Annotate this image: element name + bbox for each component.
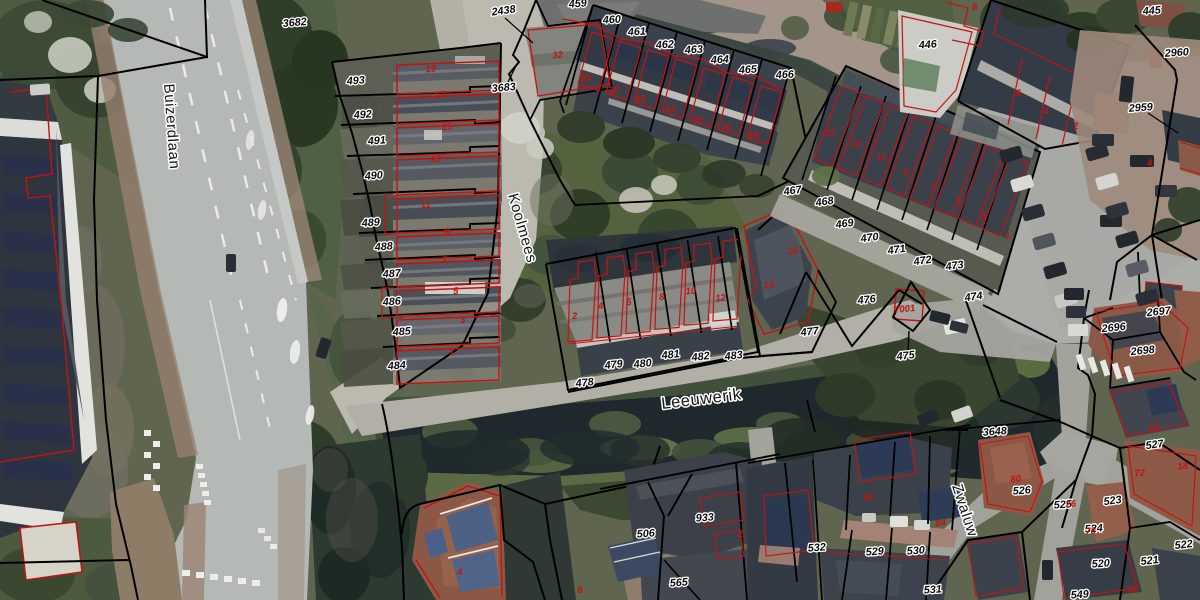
svg-text:491: 491 [366,134,386,147]
svg-text:549: 549 [1070,588,1089,600]
svg-text:22: 22 [691,114,704,126]
svg-text:19: 19 [425,63,437,75]
svg-text:32: 32 [552,49,564,61]
svg-text:11: 11 [876,152,887,164]
svg-text:465: 465 [738,63,759,76]
svg-text:10: 10 [685,285,697,297]
svg-text:446: 446 [917,38,938,51]
svg-text:3683: 3683 [491,81,516,95]
svg-text:521: 521 [1140,554,1159,568]
svg-text:493: 493 [345,74,365,87]
svg-text:529: 529 [865,545,884,558]
svg-text:15: 15 [441,121,453,133]
svg-text:484: 484 [386,359,406,372]
svg-text:80: 80 [1010,473,1022,485]
svg-text:12: 12 [1148,421,1160,433]
svg-text:28: 28 [607,84,620,96]
svg-text:490: 490 [363,169,383,182]
svg-text:14: 14 [763,279,775,291]
svg-text:18: 18 [1177,460,1189,472]
svg-text:530: 530 [906,544,925,557]
svg-text:445: 445 [1141,4,1162,17]
svg-text:463: 463 [684,44,704,57]
svg-text:24: 24 [664,103,677,115]
svg-text:480: 480 [632,357,652,371]
svg-text:3648: 3648 [982,425,1007,439]
svg-text:1: 1 [449,347,455,358]
svg-text:459: 459 [567,0,587,11]
svg-text:2960: 2960 [1163,46,1189,60]
svg-text:464: 464 [710,54,730,67]
svg-text:2959: 2959 [1127,101,1153,115]
svg-text:532: 532 [807,541,826,554]
svg-text:483: 483 [723,349,743,363]
svg-text:489: 489 [360,216,380,229]
svg-text:7001: 7001 [894,303,916,316]
svg-text:475: 475 [895,349,916,363]
svg-text:16: 16 [787,245,799,257]
svg-text:486: 486 [381,295,402,308]
svg-text:522: 522 [1174,538,1193,552]
svg-text:78: 78 [1085,525,1097,537]
svg-text:492: 492 [352,108,372,121]
svg-text:481: 481 [660,348,680,362]
svg-text:933: 933 [695,511,714,524]
svg-text:1: 1 [1005,231,1011,242]
svg-text:13: 13 [850,138,862,150]
svg-text:520: 520 [1091,557,1110,570]
svg-text:11: 11 [420,200,431,212]
svg-text:17: 17 [434,89,446,101]
svg-text:531: 531 [923,583,942,596]
svg-text:479: 479 [603,358,623,372]
svg-text:13: 13 [430,153,442,165]
svg-text:488: 488 [373,240,393,253]
svg-text:72: 72 [1134,467,1146,479]
svg-text:506: 506 [636,527,656,540]
svg-text:70: 70 [1126,584,1138,596]
svg-text:523: 523 [1103,494,1123,508]
svg-text:476: 476 [856,293,877,307]
svg-text:18: 18 [748,129,760,141]
svg-text:487: 487 [381,267,402,280]
svg-text:15: 15 [824,127,836,139]
svg-text:482: 482 [690,350,710,364]
svg-text:460: 460 [602,14,622,27]
svg-text:466: 466 [775,68,796,81]
svg-text:82: 82 [863,491,875,503]
svg-text:26: 26 [1064,498,1077,510]
svg-text:462: 462 [655,39,675,52]
svg-text:12: 12 [715,292,727,304]
svg-text:3682: 3682 [282,16,307,30]
svg-text:30: 30 [580,72,592,84]
svg-text:526: 526 [1012,484,1032,497]
svg-text:477: 477 [799,325,820,339]
svg-text:84: 84 [935,517,947,529]
svg-text:461: 461 [627,26,647,39]
svg-text:478: 478 [574,376,594,390]
svg-text:20: 20 [719,122,732,134]
svg-text:26: 26 [634,93,647,105]
svg-text:565: 565 [669,576,689,589]
svg-text:485: 485 [391,325,412,338]
